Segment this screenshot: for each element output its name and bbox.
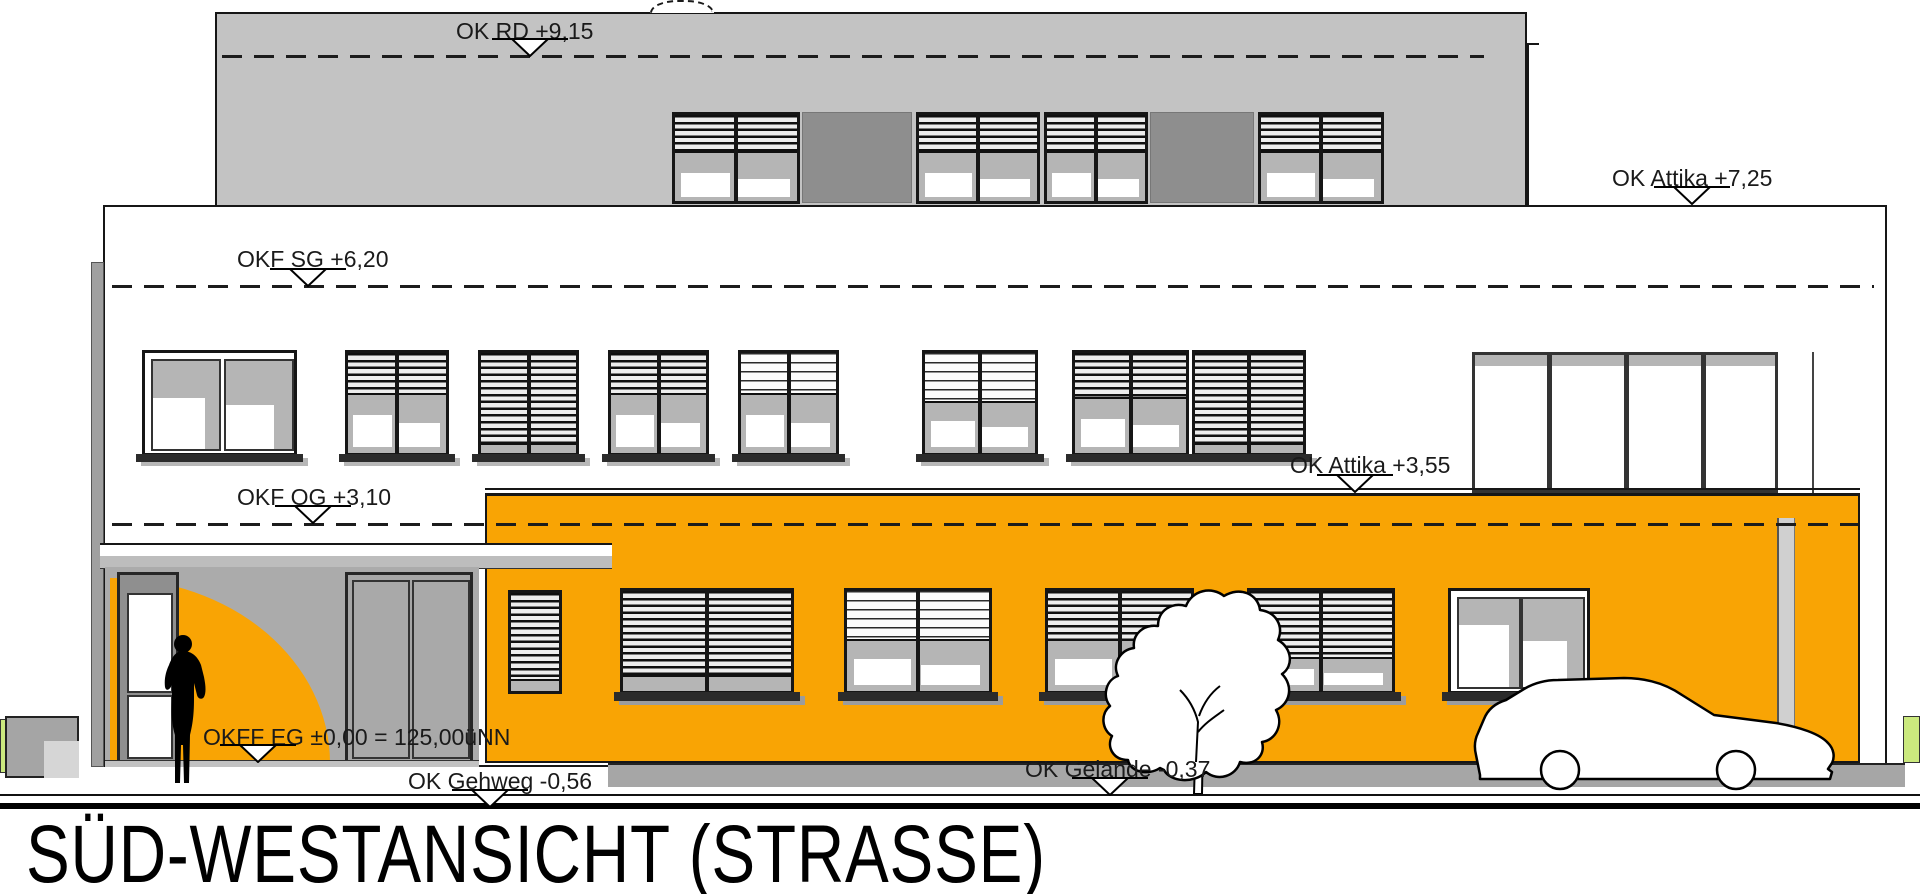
facade-panel <box>802 112 912 203</box>
level-line-okf-og <box>112 523 1858 526</box>
level-marker-icon <box>1090 777 1130 796</box>
level-marker-icon <box>1672 186 1712 205</box>
window-sill <box>838 692 998 701</box>
drawing-title: SÜD-WESTANSICHT (STRASSE) <box>26 808 1046 894</box>
window-sill <box>472 454 585 462</box>
skylight-arc <box>650 0 714 13</box>
car <box>1468 663 1848 795</box>
glazing-band <box>1472 352 1778 493</box>
level-line-okf-sg <box>112 285 1874 288</box>
attika-edge-line <box>485 488 1860 490</box>
window <box>1044 112 1148 204</box>
window <box>844 588 992 694</box>
window <box>1258 112 1384 204</box>
window <box>608 350 709 456</box>
level-marker-icon <box>470 789 510 808</box>
window-sill <box>339 454 455 462</box>
parapet-edge <box>1812 352 1814 493</box>
person-silhouette <box>158 633 216 787</box>
window <box>916 112 1040 204</box>
side-wall-edge <box>91 262 104 767</box>
window <box>345 350 449 456</box>
window-shutters-closed <box>478 350 579 456</box>
planter-wall-face <box>44 741 79 778</box>
window-shutters-closed <box>508 590 562 694</box>
facade-panel <box>1150 112 1254 203</box>
level-marker-icon <box>1335 474 1375 493</box>
level-line-ok-rd <box>222 55 1484 58</box>
window-sill <box>614 692 800 701</box>
window-sill <box>732 454 845 462</box>
elevation-drawing: OK RD +9,15 OK Attika +7,25 OKF SG +6,20… <box>0 0 1920 894</box>
window <box>1072 350 1189 456</box>
upper-floor-parapet-step <box>1527 43 1539 207</box>
window-sill <box>136 454 303 462</box>
entrance-canopy <box>100 543 612 569</box>
window-sill <box>1066 454 1195 462</box>
level-marker-icon <box>238 744 278 763</box>
level-marker-icon <box>510 38 550 57</box>
window <box>142 350 297 456</box>
window <box>738 350 839 456</box>
grass-strip-right <box>1903 716 1920 763</box>
level-marker-icon <box>293 505 333 524</box>
window <box>922 350 1038 456</box>
window <box>672 112 800 204</box>
window-shutters-closed <box>620 588 794 694</box>
window-shutters-closed <box>1192 350 1306 456</box>
window-sill <box>916 454 1044 462</box>
level-marker-icon <box>288 268 328 287</box>
window-sill <box>602 454 715 462</box>
